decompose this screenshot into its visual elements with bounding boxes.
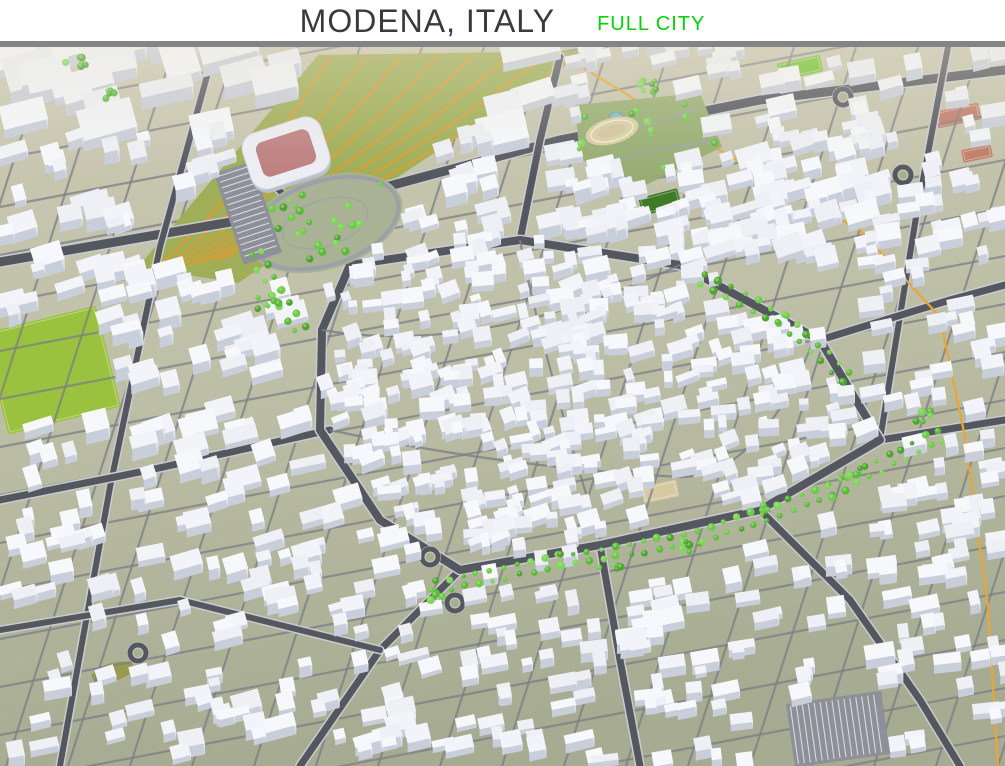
city-scope-badge: FULL CITY	[597, 14, 705, 41]
horizon-haze	[0, 47, 1005, 177]
city-map-render	[0, 47, 1005, 766]
city-map	[0, 47, 1005, 766]
header: MODENA, ITALY FULL CITY	[0, 0, 1005, 41]
page-title: MODENA, ITALY	[300, 5, 555, 41]
